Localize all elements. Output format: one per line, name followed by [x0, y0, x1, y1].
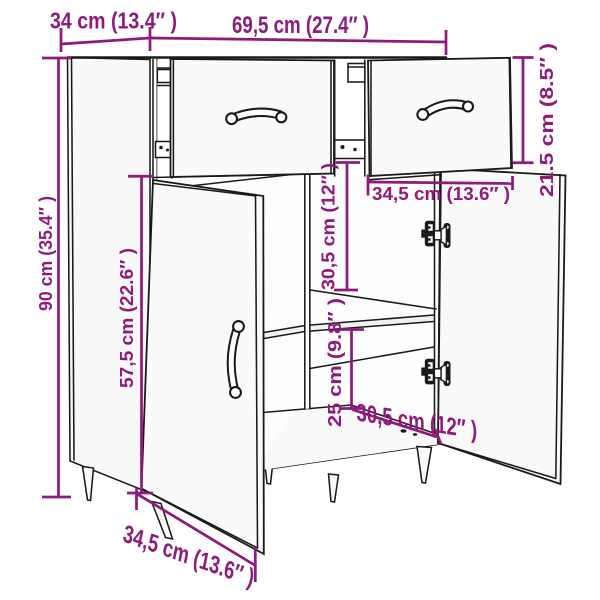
svg-text:34,5 cm (13.6″ ): 34,5 cm (13.6″ ) [372, 184, 510, 204]
svg-text:21.5 cm (8.5″ ): 21.5 cm (8.5″ ) [537, 43, 557, 197]
svg-text:30,5 cm (12″ ): 30,5 cm (12″ ) [319, 163, 339, 290]
svg-text:25 cm (9.8″ ): 25 cm (9.8″ ) [325, 298, 345, 427]
svg-text:69,5 cm (27.4″ ): 69,5 cm (27.4″ ) [232, 12, 369, 39]
svg-text:34 cm (13.4″ ): 34 cm (13.4″ ) [50, 8, 177, 34]
svg-text:57,5 cm (22.6″ ): 57,5 cm (22.6″ ) [117, 248, 137, 388]
svg-text:90 cm (35.4″ ): 90 cm (35.4″ ) [36, 196, 56, 311]
